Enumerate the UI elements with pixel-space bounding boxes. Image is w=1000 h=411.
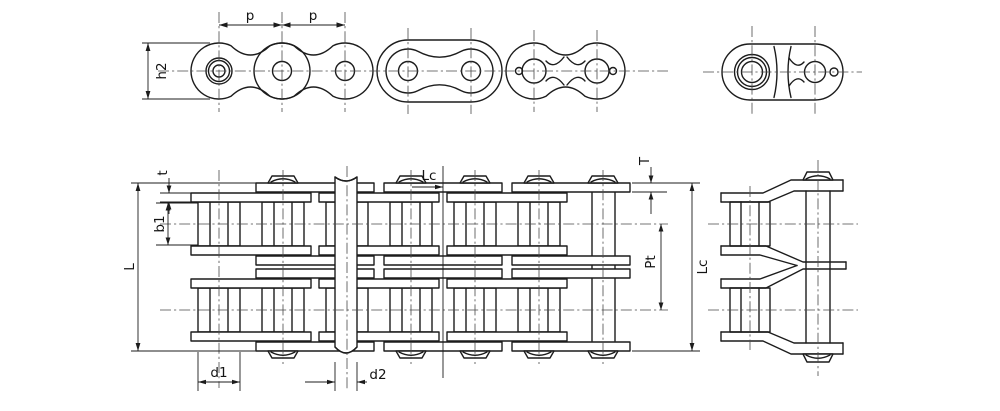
dim-label-pin-length: L [122,263,138,271]
dim-transverse-pitch: Pt [643,224,663,310]
side-view: p p h2 [142,8,668,114]
rollers [198,202,560,332]
dim-label-inner-plate-thickness: t [155,170,171,175]
connecting-pin [335,177,357,353]
chain-technical-drawing: p p h2 [0,0,1000,411]
dim-label-plate-height: h2 [154,62,170,79]
dim-label-roller-diameter: d1 [210,365,227,381]
dim-pin-diameter: d2 [305,362,387,391]
dim-plate-height: h2 [146,43,170,99]
drawing-canvas: p p h2 [0,0,1000,411]
dim-label-pitch-2: p [309,8,318,24]
dim-label-transverse-pitch: Pt [643,255,659,268]
cranked-plate-bottom [721,332,843,354]
dim-label-pitch-1: p [246,8,255,24]
plan-view: t b1 L d1 [122,156,711,391]
connecting-link-inner-plate [386,49,493,93]
dim-outer-plate-thickness: T [632,156,700,214]
dim-inner-plate-thickness: t [155,170,192,214]
dim-label-pin-diameter: d2 [369,367,386,383]
dim-label-connecting-pin-length-right: Lc [695,260,711,275]
connecting-link-view [703,26,862,116]
dim-label-connecting-pin-length-top: Lc [422,168,437,184]
inner-plates [191,193,567,341]
offset-link-view [708,160,858,376]
dim-label-inner-width: b1 [152,215,168,232]
cranked-plate-middle [721,246,846,288]
cranked-plate-top [721,180,843,202]
dim-label-outer-plate-thickness: T [637,156,653,166]
